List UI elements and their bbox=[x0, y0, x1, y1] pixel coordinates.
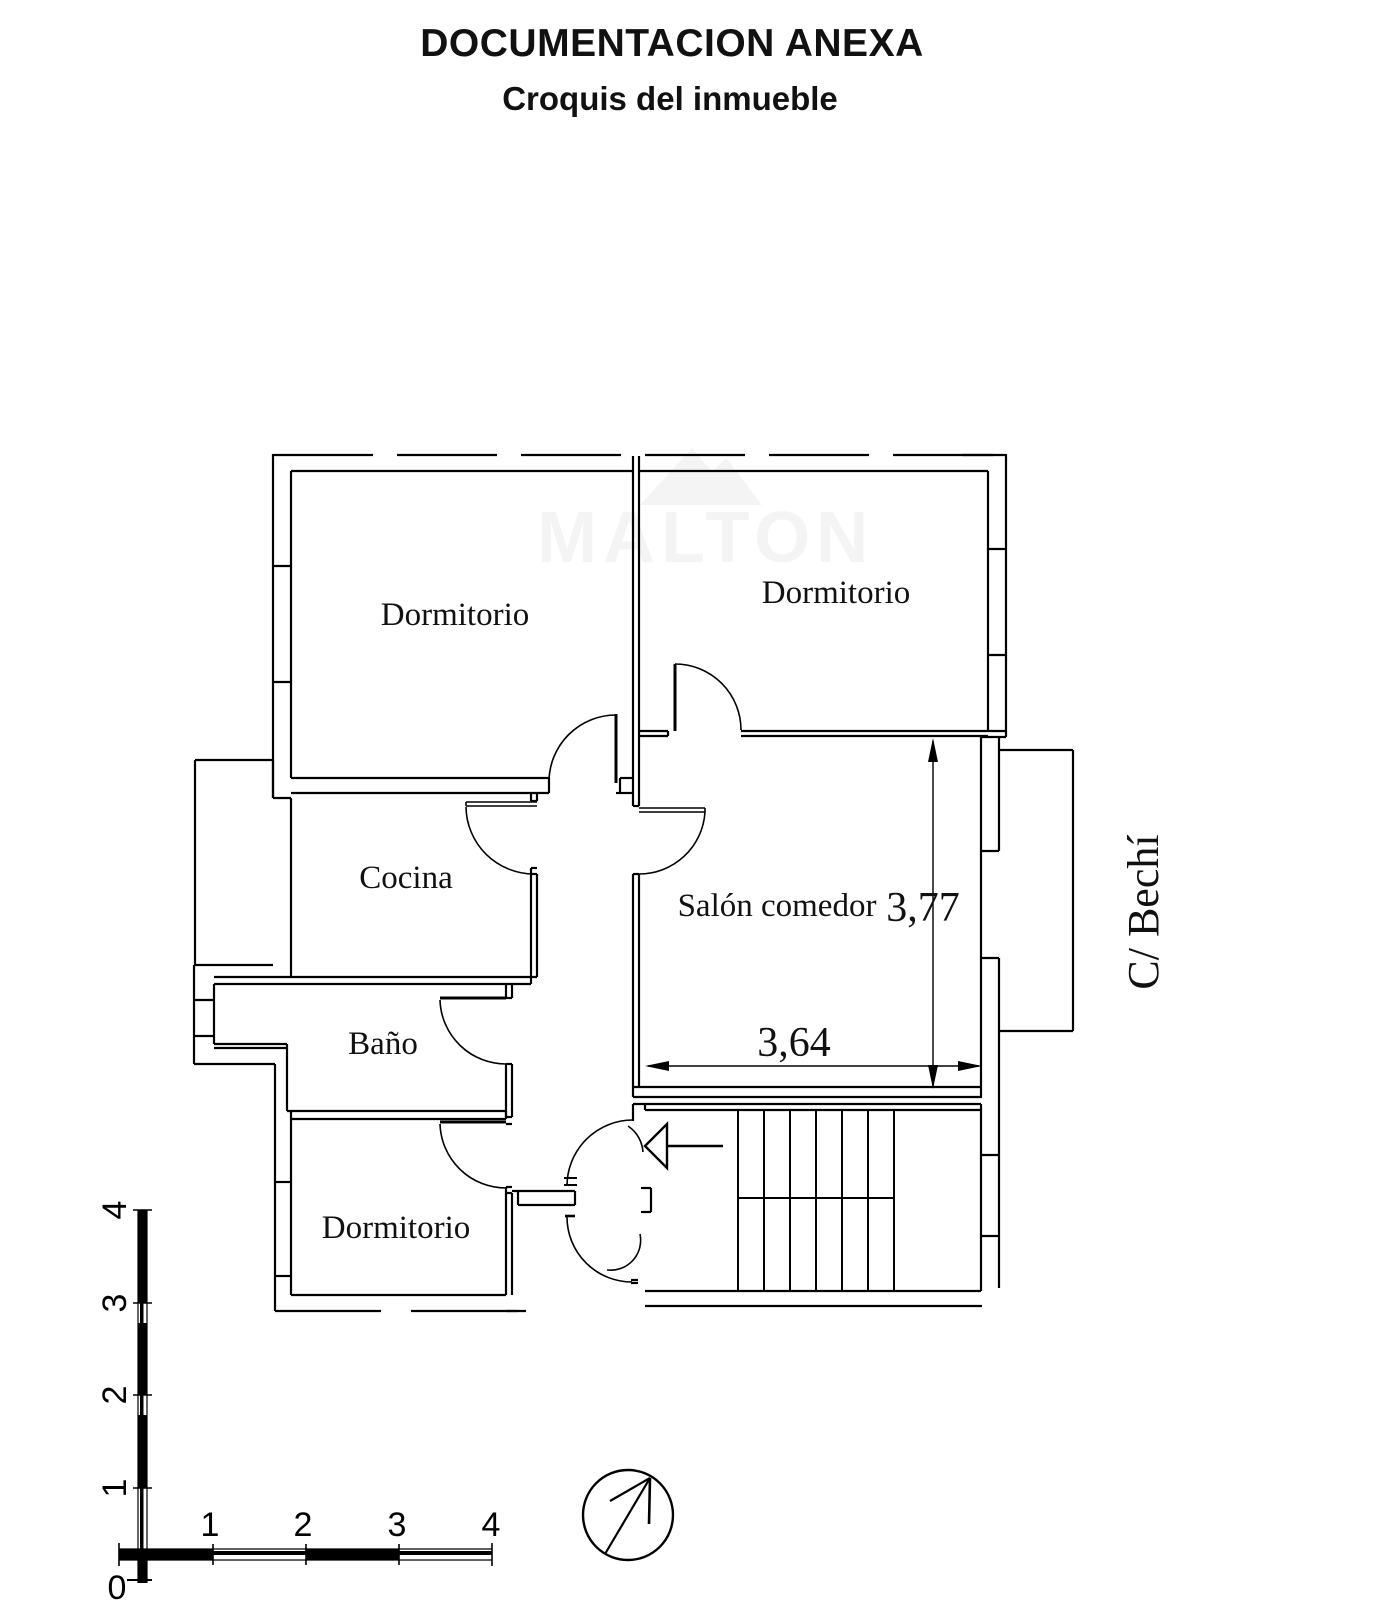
svg-text:Dormitorio: Dormitorio bbox=[322, 1210, 470, 1246]
svg-text:Dormitorio: Dormitorio bbox=[381, 597, 529, 633]
svg-text:Cocina: Cocina bbox=[359, 860, 453, 896]
svg-text:3: 3 bbox=[96, 1294, 134, 1313]
svg-text:0: 0 bbox=[108, 1569, 127, 1600]
svg-text:MALTON: MALTON bbox=[537, 498, 874, 578]
svg-text:1: 1 bbox=[96, 1479, 134, 1498]
svg-text:4: 4 bbox=[96, 1201, 134, 1220]
svg-text:2: 2 bbox=[294, 1506, 313, 1544]
svg-text:3,64: 3,64 bbox=[757, 1020, 831, 1066]
svg-text:4: 4 bbox=[482, 1506, 501, 1544]
svg-text:C/ Bechí: C/ Bechí bbox=[1119, 834, 1168, 989]
svg-text:Salón comedor: Salón comedor bbox=[678, 888, 877, 924]
svg-text:1: 1 bbox=[201, 1506, 220, 1544]
svg-text:3: 3 bbox=[388, 1506, 407, 1544]
svg-text:Dormitorio: Dormitorio bbox=[762, 575, 910, 611]
svg-text:2: 2 bbox=[96, 1386, 134, 1405]
svg-text:3,77: 3,77 bbox=[886, 885, 960, 931]
svg-text:Baño: Baño bbox=[348, 1026, 418, 1062]
